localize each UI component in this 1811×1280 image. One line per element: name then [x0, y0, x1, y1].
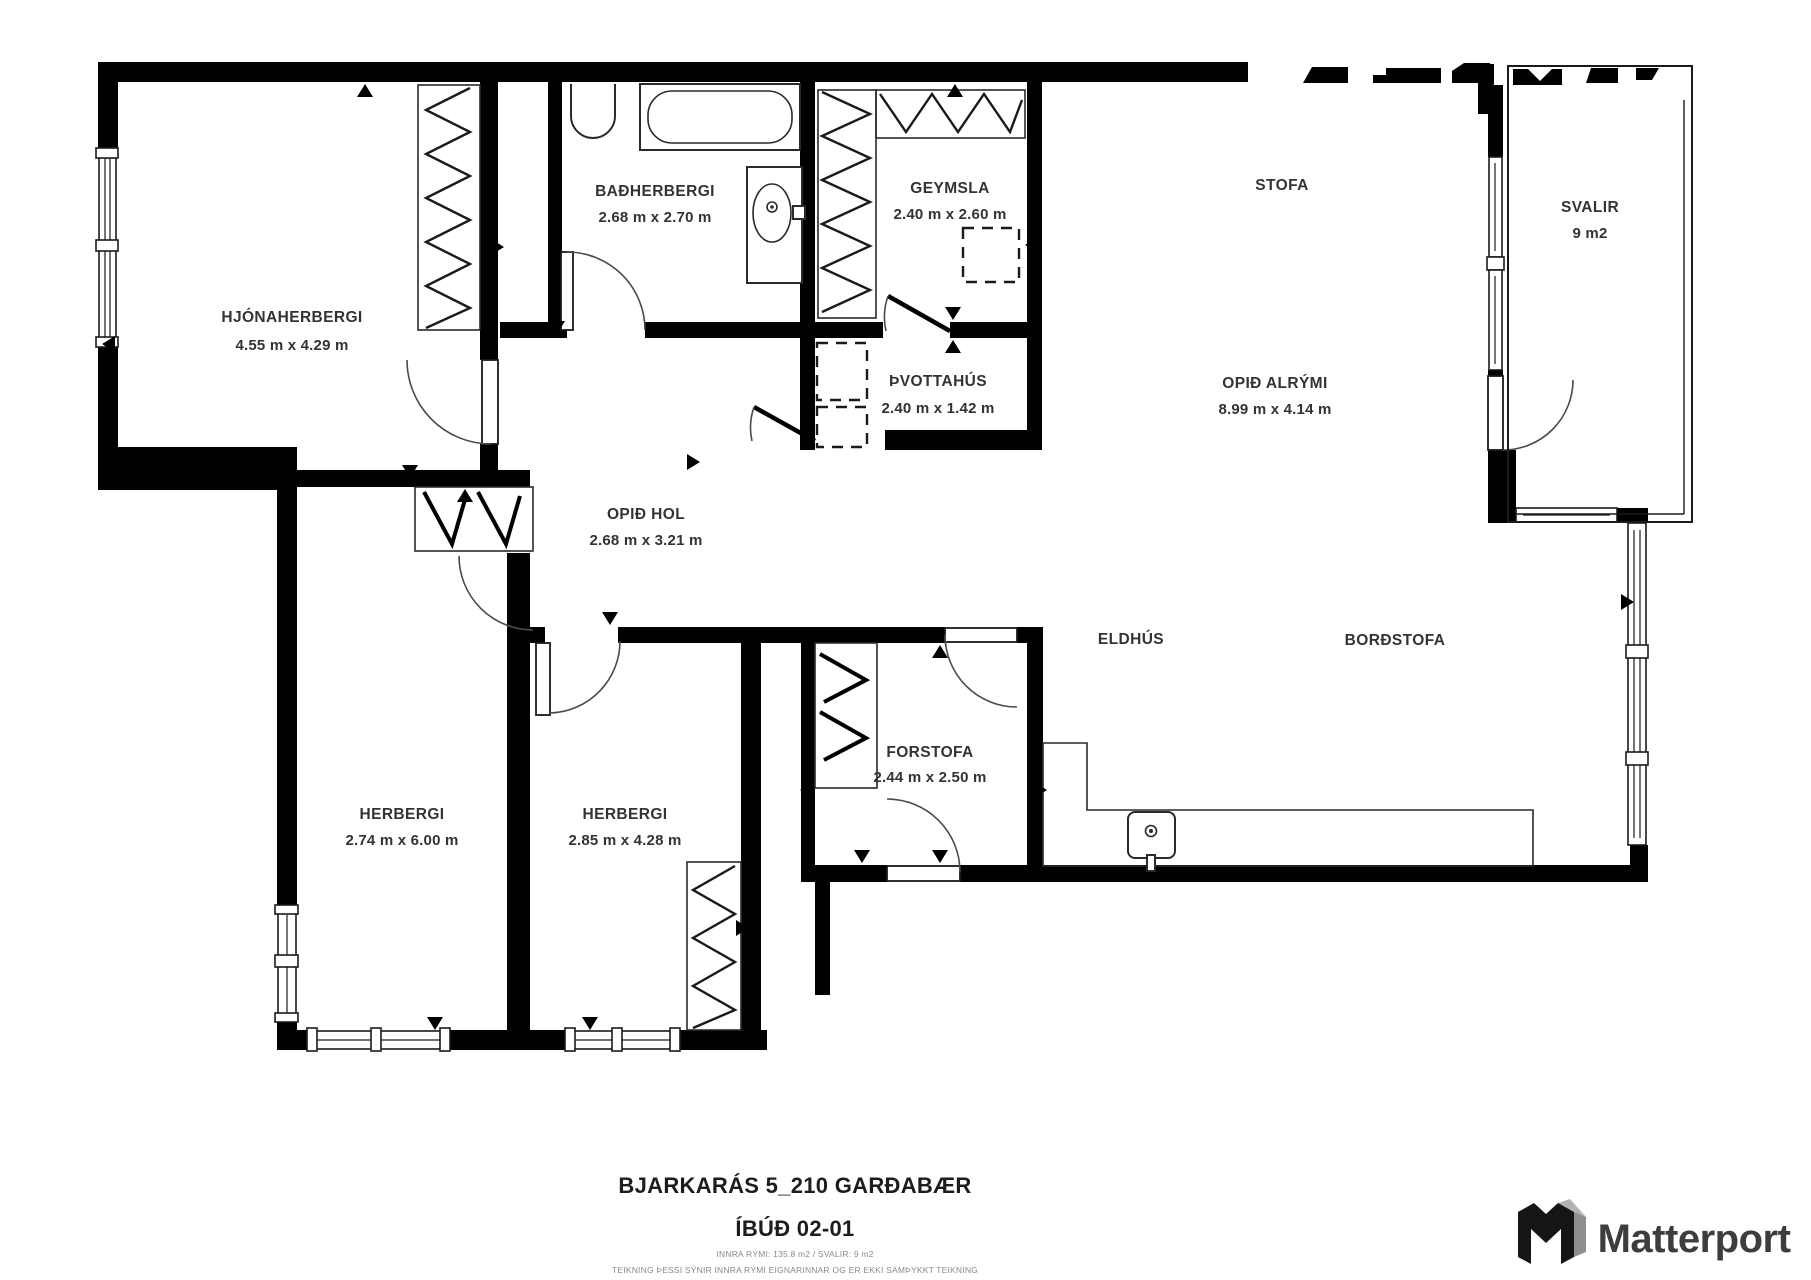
kitchen-counter-icon [1043, 743, 1533, 871]
wardrobe-bedroom2-icon [687, 862, 741, 1030]
room-label-bordstofa: BORÐSTOFA [1345, 632, 1446, 649]
room-label-herbergi2: HERBERGI 2.85 m x 4.28 m [568, 806, 681, 849]
svg-text:FORSTOFA: FORSTOFA [886, 744, 973, 761]
windows [96, 148, 1648, 1051]
room-labels: HJÓNAHERBERGI 4.55 m x 4.29 m BAÐHERBERG… [221, 177, 1619, 849]
matterport-logo: Matterport [1518, 1199, 1791, 1264]
window-bedroom1-bottom [307, 1028, 450, 1051]
dryer-icon [817, 407, 867, 447]
balcony-outline [1508, 66, 1692, 522]
door-storage [884, 296, 950, 331]
room-label-svalir: SVALIR 9 m2 [1561, 199, 1619, 242]
plan-area-info: INNRA RÝMI: 135.8 m2 / SVALIR: 9 m2 [716, 1249, 873, 1259]
svg-text:HERBERGI: HERBERGI [359, 806, 444, 823]
svg-text:BAÐHERBERGI: BAÐHERBERGI [595, 183, 715, 200]
svg-text:HERBERGI: HERBERGI [582, 806, 667, 823]
door-bathroom [561, 252, 645, 330]
plan-subtitle: ÍBÚÐ 02-01 [735, 1216, 854, 1241]
washer-icon [817, 343, 867, 400]
door-master-bedroom [407, 360, 498, 444]
door-entrance [887, 799, 960, 881]
walls [98, 62, 1648, 1050]
room-label-forstofa: FORSTOFA 2.44 m x 2.50 m [873, 744, 986, 786]
svg-text:2.68 m x 2.70 m: 2.68 m x 2.70 m [598, 209, 711, 226]
svg-text:ÞVOTTAHÚS: ÞVOTTAHÚS [889, 372, 987, 390]
room-label-stofa: STOFA [1255, 177, 1308, 194]
room-label-hjonaherbergi: HJÓNAHERBERGI 4.55 m x 4.29 m [221, 308, 362, 354]
svg-text:GEYMSLA: GEYMSLA [910, 180, 989, 197]
title-block: BJARKARÁS 5_210 GARÐABÆR ÍBÚÐ 02-01 INNR… [612, 1173, 978, 1275]
svg-text:2.40 m x 2.60 m: 2.40 m x 2.60 m [893, 206, 1006, 223]
freezer-icon [963, 228, 1019, 282]
door-bedroom2 [536, 641, 620, 715]
bathroom-sink-icon [747, 167, 805, 283]
floor-plan: HJÓNAHERBERGI 4.55 m x 4.29 m BAÐHERBERG… [0, 0, 1811, 1280]
room-label-opid-alrymi: OPIÐ ALRÝMI 8.99 m x 4.14 m [1218, 374, 1331, 418]
fixtures [415, 84, 1533, 1030]
matterport-logo-text: Matterport [1598, 1217, 1791, 1261]
door-hall-to-kitchen [945, 628, 1017, 707]
window-bedroom2-bottom [565, 1028, 680, 1051]
svg-text:2.74 m x 6.00 m: 2.74 m x 6.00 m [345, 832, 458, 849]
svg-text:OPIÐ HOL: OPIÐ HOL [607, 506, 685, 523]
svg-text:4.55 m x 4.29 m: 4.55 m x 4.29 m [235, 337, 348, 354]
svg-text:2.44 m x 2.50 m: 2.44 m x 2.50 m [873, 769, 986, 786]
room-label-eldhus: ELDHÚS [1098, 630, 1164, 648]
shelving-storage-icon [818, 90, 1025, 318]
door-balcony [1488, 376, 1573, 450]
window-balcony-bottom [1516, 508, 1617, 522]
wardrobe-master-icon [418, 85, 480, 330]
window-master-left [96, 148, 118, 347]
window-dining-right [1626, 523, 1648, 845]
closet-hall-icon [415, 487, 533, 551]
svg-text:2.85 m x 4.28 m: 2.85 m x 4.28 m [568, 832, 681, 849]
room-label-thvottahus: ÞVOTTAHÚS 2.40 m x 1.42 m [881, 372, 994, 417]
toilet-icon [571, 84, 615, 138]
closet-entry-icon [815, 643, 877, 788]
doors [407, 252, 1573, 881]
svg-text:HJÓNAHERBERGI: HJÓNAHERBERGI [221, 308, 362, 326]
svg-text:9 m2: 9 m2 [1573, 225, 1608, 242]
plan-disclaimer: TEIKNING ÞESSI SÝNIR INNRA RÝMI EIGNARIN… [612, 1265, 978, 1275]
svg-text:2.68 m x 3.21 m: 2.68 m x 3.21 m [589, 532, 702, 549]
svg-text:OPIÐ ALRÝMI: OPIÐ ALRÝMI [1222, 374, 1327, 392]
svg-text:SVALIR: SVALIR [1561, 199, 1619, 216]
room-label-badherbergi: BAÐHERBERGI 2.68 m x 2.70 m [595, 183, 715, 226]
room-label-opid-hol: OPIÐ HOL 2.68 m x 3.21 m [589, 506, 702, 549]
floor-plan-page: HJÓNAHERBERGI 4.55 m x 4.29 m BAÐHERBERG… [0, 0, 1811, 1280]
bathtub-icon [640, 84, 800, 150]
window-balcony-wall [1487, 157, 1504, 370]
plan-title: BJARKARÁS 5_210 GARÐABÆR [618, 1173, 971, 1198]
svg-text:2.40 m x 1.42 m: 2.40 m x 1.42 m [881, 400, 994, 417]
room-label-geymsla: GEYMSLA 2.40 m x 2.60 m [893, 180, 1006, 223]
svg-text:8.99 m x 4.14 m: 8.99 m x 4.14 m [1218, 401, 1331, 418]
window-bedroom1-left [275, 905, 298, 1022]
matterport-cube-icon [1518, 1199, 1586, 1264]
room-label-herbergi1: HERBERGI 2.74 m x 6.00 m [345, 806, 458, 849]
wall-markers [102, 84, 1634, 1030]
